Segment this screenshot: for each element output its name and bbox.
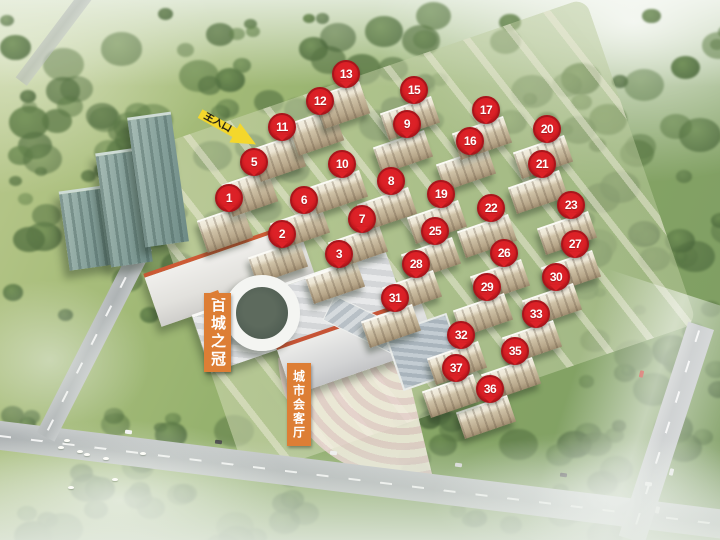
marker-pin-28: 28 bbox=[402, 250, 430, 278]
marker-pin-37: 37 bbox=[442, 354, 470, 382]
marker-pin-30: 30 bbox=[542, 263, 570, 291]
marker-pin-5: 5 bbox=[240, 148, 268, 176]
marker-pin-25: 25 bbox=[421, 217, 449, 245]
marker-pin-3: 3 bbox=[325, 240, 353, 268]
mall-ring-feature bbox=[224, 275, 300, 351]
marker-pin-2: 2 bbox=[268, 220, 296, 248]
marker-pin-6: 6 bbox=[290, 186, 318, 214]
marker-pin-13: 13 bbox=[332, 60, 360, 88]
marker-pin-7: 7 bbox=[348, 205, 376, 233]
project-name-label: 百城之冠 bbox=[207, 297, 228, 369]
marker-pin-17: 17 bbox=[472, 96, 500, 124]
marker-pin-12: 12 bbox=[306, 87, 334, 115]
marker-pin-19: 19 bbox=[427, 180, 455, 208]
aerial-rendering: 1235678910111213151617192021222325262728… bbox=[0, 0, 720, 540]
marker-pin-33: 33 bbox=[522, 300, 550, 328]
marker-pin-20: 20 bbox=[533, 115, 561, 143]
city-hall-label: 城市会客厅 bbox=[291, 370, 308, 440]
marker-pin-35: 35 bbox=[501, 337, 529, 365]
marker-pin-22: 22 bbox=[477, 194, 505, 222]
city-hall-banner: 城市会客厅 bbox=[287, 363, 311, 446]
marker-pin-36: 36 bbox=[476, 375, 504, 403]
project-name-banner: 百城之冠 bbox=[204, 293, 231, 372]
marker-pin-32: 32 bbox=[447, 321, 475, 349]
marker-pin-11: 11 bbox=[268, 113, 296, 141]
marker-pin-8: 8 bbox=[377, 167, 405, 195]
marker-pin-21: 21 bbox=[528, 150, 556, 178]
marker-pin-26: 26 bbox=[490, 239, 518, 267]
marker-pin-9: 9 bbox=[393, 110, 421, 138]
marker-pin-23: 23 bbox=[557, 191, 585, 219]
marker-pin-16: 16 bbox=[456, 127, 484, 155]
marker-pin-31: 31 bbox=[381, 284, 409, 312]
marker-pin-10: 10 bbox=[328, 150, 356, 178]
marker-pin-1: 1 bbox=[215, 184, 243, 212]
marker-pin-27: 27 bbox=[561, 230, 589, 258]
marker-pin-29: 29 bbox=[473, 273, 501, 301]
marker-pin-15: 15 bbox=[400, 76, 428, 104]
